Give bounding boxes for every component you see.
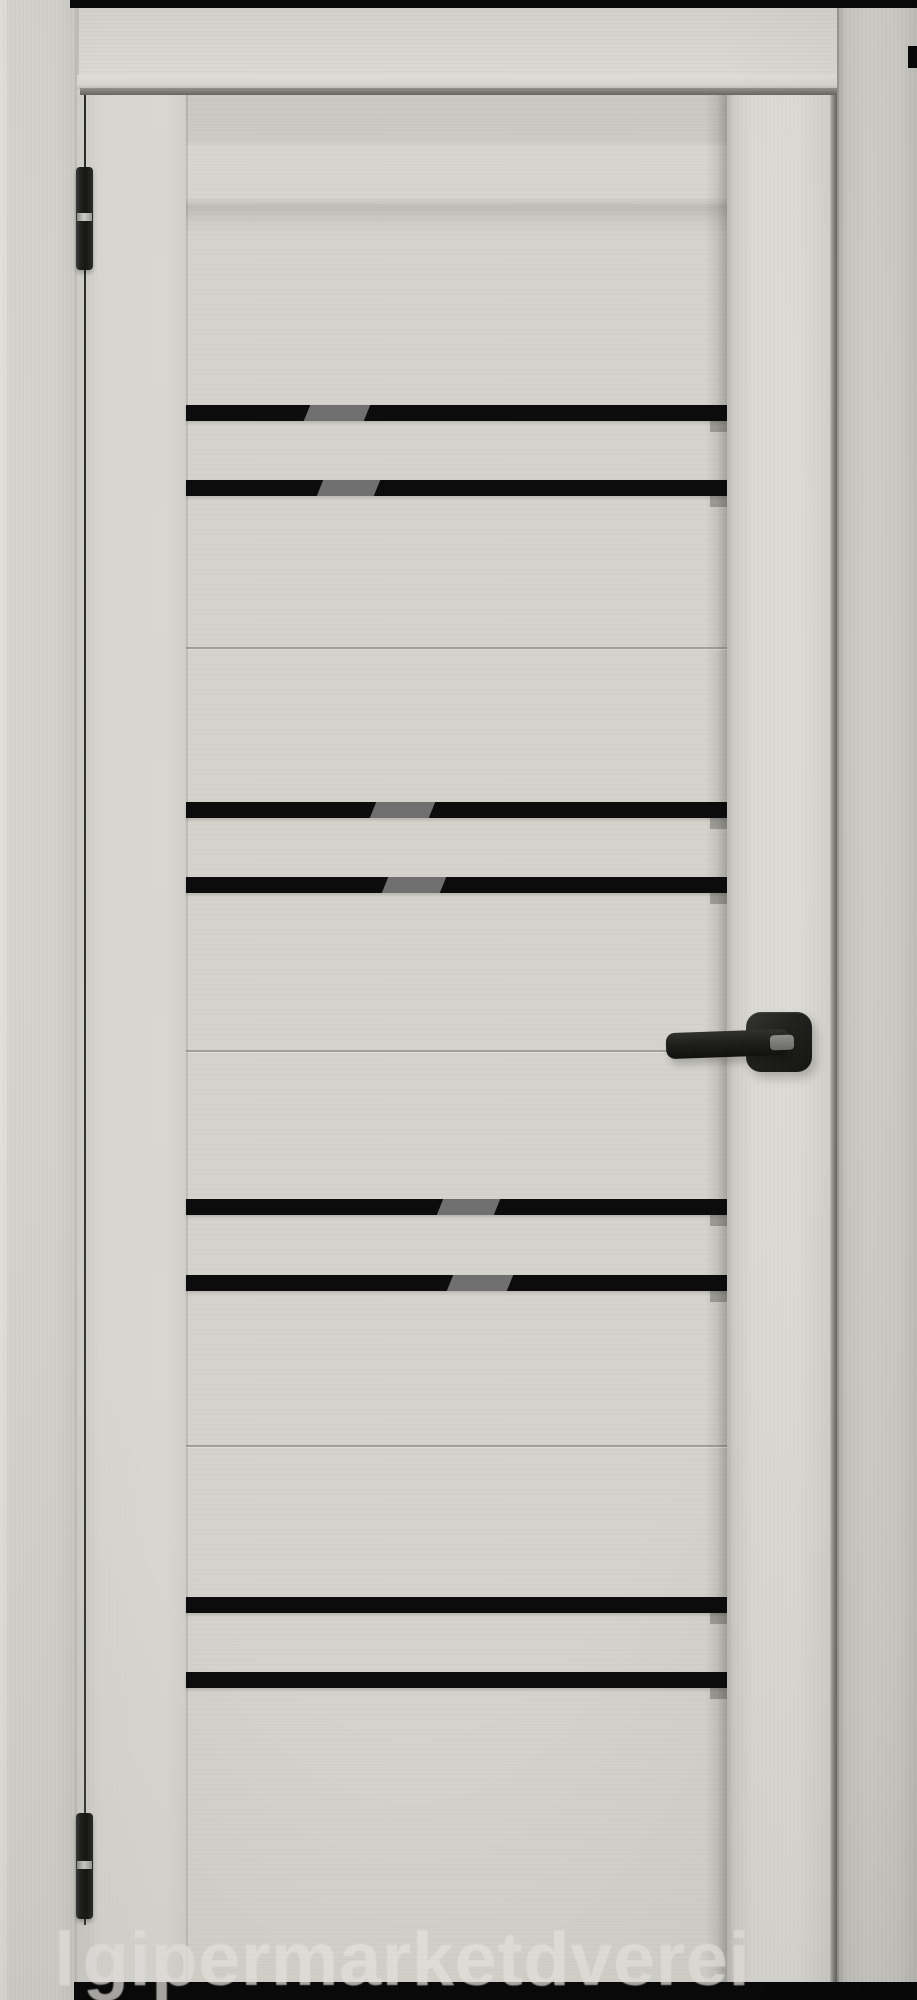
panel-seam <box>186 647 727 649</box>
glass-stripe <box>186 877 727 893</box>
door-leaf-left-stile <box>86 95 186 1984</box>
panel-seam <box>186 1445 727 1447</box>
watermark-leading-glyph: l <box>54 1917 76 2000</box>
leaf-frame-gap <box>830 95 837 1984</box>
door-hinge <box>76 167 93 270</box>
leaf-top-gap <box>80 88 837 95</box>
hinge-band <box>77 213 92 221</box>
stripe-reflection <box>317 480 380 496</box>
panel-left-edge-line <box>186 95 188 1984</box>
glass-stripe <box>186 1597 727 1613</box>
glass-stripe <box>186 802 727 818</box>
glass-stripe <box>186 1275 727 1291</box>
stripe-reflection <box>304 405 370 421</box>
watermark: lgipermarketdverei <box>54 1922 750 1998</box>
glass-stripe <box>186 1199 727 1215</box>
stripe-reflection <box>447 1275 513 1291</box>
handle-neck-highlight <box>770 1035 795 1051</box>
door-frame-left-jamb <box>0 0 77 2000</box>
background-right-sliver <box>908 46 917 68</box>
panel-seam <box>186 1050 727 1052</box>
glass-stripe <box>186 480 727 496</box>
hinge-gap-line <box>84 95 86 1925</box>
watermark-text: gipermarketdverei <box>83 1917 751 2000</box>
stripe-reflection <box>370 802 435 818</box>
door-frame-header-bevel <box>77 75 837 89</box>
door-hinge <box>76 1813 93 1919</box>
glass-panel-area <box>186 95 727 1984</box>
stripe-reflection <box>382 877 446 893</box>
door-product-photo: lgipermarketdverei <box>0 0 917 2000</box>
glass-stripe <box>186 405 727 421</box>
door-frame-header <box>77 8 837 75</box>
door-frame-right-jamb <box>837 8 917 2000</box>
hinge-band <box>77 1861 92 1869</box>
background-top-strip <box>70 0 917 8</box>
glass-stripe <box>186 1672 727 1688</box>
stripe-reflection <box>437 1199 500 1215</box>
